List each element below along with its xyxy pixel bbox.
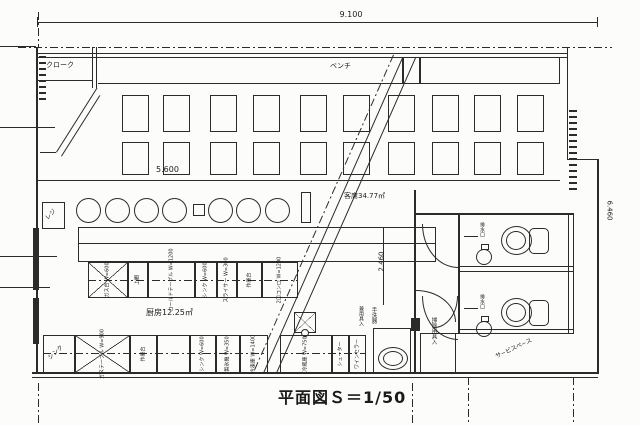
equipment-label: シンク W=600 (201, 336, 206, 371)
equipment-box: 冷蔵庫 W=750 (280, 335, 332, 373)
wall-toilet-top (414, 213, 573, 215)
equipment-box: ガステーブル W=900 (75, 335, 130, 373)
cleaning-closet (420, 333, 456, 374)
counter-stool (208, 198, 233, 223)
beer-server (301, 192, 311, 223)
wall-top (38, 57, 567, 58)
cloak-label: クローク (46, 62, 74, 69)
equipment-box: シンク (43, 335, 75, 373)
dimension-corridor-value: 2.460 (379, 232, 386, 292)
wall-toilet-right (573, 213, 574, 333)
counter-stool (105, 198, 130, 223)
dining-table (253, 95, 280, 132)
stall-basin (476, 249, 492, 265)
wall-cloak (96, 47, 97, 88)
drawing-title: 平面図Ｓ＝1/50 (278, 390, 406, 406)
wall-left-solid (33, 298, 39, 344)
equipment-centerline (88, 280, 298, 281)
equipment-label: ガステーブル W=900 (100, 329, 105, 379)
bench-end-line (559, 57, 560, 83)
dining-table (343, 142, 370, 175)
counter-stool (76, 198, 101, 223)
dining-table (300, 142, 327, 175)
grid-line (38, 383, 39, 423)
counter-small-stand (193, 204, 205, 216)
dining-table (343, 95, 370, 132)
handwash-basin-inner (383, 351, 403, 366)
grid-line (468, 377, 469, 424)
wall-right-upper (567, 47, 568, 160)
dimension-tick (597, 17, 598, 27)
reference-line (0, 287, 50, 288)
reference-line (0, 256, 57, 257)
door-jamb (402, 57, 404, 83)
dining-table (253, 142, 280, 175)
register-label: レジ (45, 209, 58, 222)
equipment-label: 作業台 (141, 346, 146, 361)
wall-stub (40, 152, 56, 153)
wall-left-solid (33, 228, 39, 290)
door-jamb (419, 57, 421, 83)
equipment-label: 冷蔵庫 W=750 (304, 336, 309, 371)
bench-label: ベンチ (330, 63, 351, 70)
equipment-box: 製氷機 W=350 (216, 335, 240, 373)
wall-cloak (92, 47, 93, 88)
dining-table (517, 95, 544, 132)
dining-table (163, 95, 190, 132)
equipment-box: シンク W=600 (190, 335, 216, 373)
reference-line (0, 127, 55, 128)
wall-top (38, 53, 567, 54)
kitchen-area-label: 厨房12.25㎡ (146, 309, 193, 317)
dining-table (474, 95, 501, 132)
wall-hatch (569, 110, 577, 190)
dimension-right-value: 6.460 (606, 182, 613, 240)
wall-entrance-diagonal (56, 88, 97, 153)
toilet-tank (529, 300, 549, 326)
grid-line (18, 47, 612, 48)
equipment-label: 冷凍庫 W=1400 (252, 335, 257, 373)
grid-line (38, 12, 39, 47)
wall-stall-divider (458, 266, 573, 267)
bench-front-line (98, 83, 560, 84)
wall-kitchen-right (414, 190, 416, 374)
wall-jog (567, 159, 598, 160)
equipment-box: 冷凍庫 W=1400 (240, 335, 268, 373)
leader-line (464, 236, 478, 237)
dining-table (474, 142, 501, 175)
cleaning-closet-label: 掃除用具入 (430, 317, 436, 377)
wall-cloak (38, 80, 92, 81)
wall-toilet-left (458, 213, 460, 333)
counter-stool (236, 198, 261, 223)
equipment-box: 作業台 (130, 335, 157, 373)
dimension-line-top (38, 22, 598, 23)
wall-stall-divider (458, 271, 573, 272)
floor-boundary-line (38, 180, 560, 181)
floor-plan-canvas: 9.100 クローク ベンチ 客席34.77㎡ 5.600 レジ ガス台 (0, 0, 640, 425)
dining-table (517, 142, 544, 175)
wall-right-lower (597, 159, 599, 374)
equipment-label: シューター (338, 341, 343, 366)
dining-table (210, 142, 237, 175)
wall-bottom (32, 377, 598, 378)
equipment-label: 製氷機 W=350 (226, 336, 231, 371)
grid-line (573, 377, 574, 424)
dining-table (300, 95, 327, 132)
counter-stool (162, 198, 187, 223)
equipment-centerline (280, 353, 366, 354)
register-box: レジ (42, 202, 65, 229)
wall-toilet-right (568, 213, 569, 333)
dining-table (388, 142, 415, 175)
reference-line (0, 46, 36, 47)
counter-stool (265, 198, 290, 223)
dining-table (432, 142, 459, 175)
grid-line (412, 383, 413, 423)
dining-table (163, 142, 190, 175)
equipment-box: シューター (332, 335, 349, 373)
toilet-tank (529, 228, 549, 254)
handwash-label: 手洗器 (370, 307, 376, 347)
dining-table (122, 95, 149, 132)
dining-table (432, 95, 459, 132)
counter-stool (134, 198, 159, 223)
wall-entrance-diagonal (61, 95, 100, 156)
dining-table (388, 95, 415, 132)
equipment-centerline (43, 353, 268, 354)
toilet-bowl-inner (506, 231, 526, 250)
dimension-top-value: 9.100 (311, 11, 391, 19)
dining-table (210, 95, 237, 132)
seating-area-label: 客席34.77㎡ (344, 193, 385, 200)
handwash-sub-label: 兼用具入 (358, 306, 363, 354)
leader-line (464, 308, 478, 309)
equipment-box (157, 335, 190, 373)
dining-table (122, 142, 149, 175)
toilet-bowl-inner (506, 303, 526, 322)
